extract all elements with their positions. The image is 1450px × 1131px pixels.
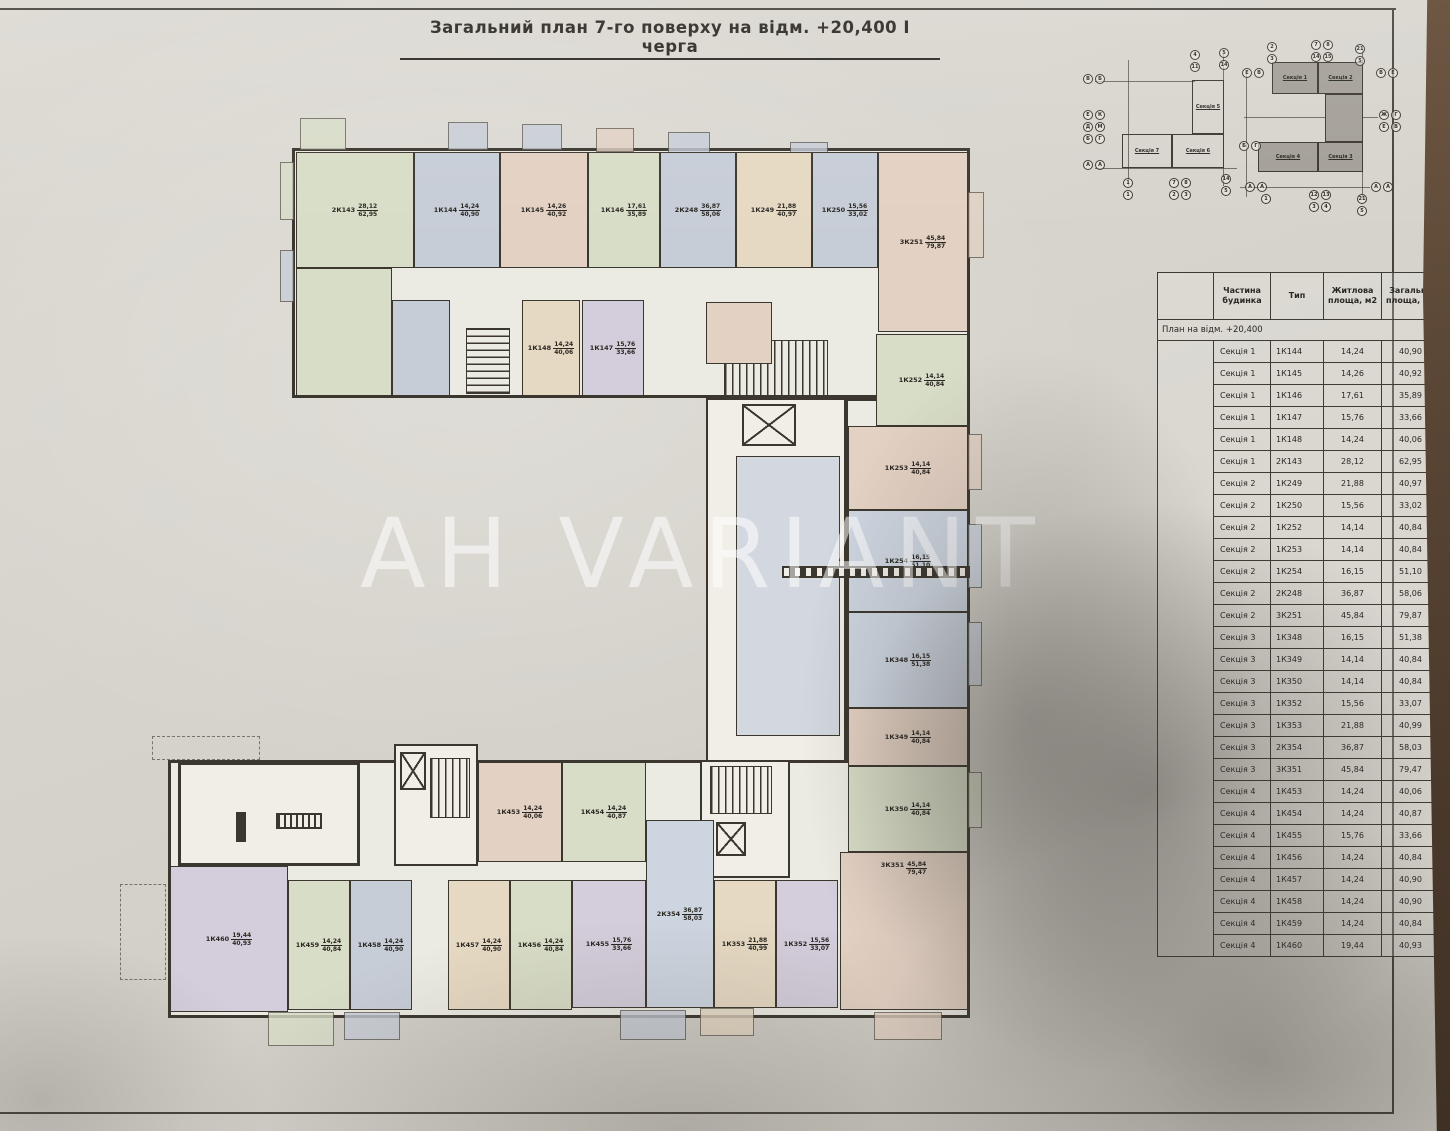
apartment-areas: 21,8840,99 <box>747 937 768 952</box>
axis-bubble: 12 <box>1309 190 1319 200</box>
type-cell: 1К458 <box>1271 891 1324 913</box>
axis-bubble: Г <box>1095 134 1105 144</box>
furniture-mark <box>236 812 246 842</box>
apartment-1К250: 1К25015,5633,02 <box>812 152 878 268</box>
apartment-1К249: 1К24921,8840,97 <box>736 152 812 268</box>
axis-bubble: 13 <box>1321 190 1331 200</box>
apartment-3К251: 3К25145,8479,87 <box>878 152 968 332</box>
total-area-cell: 40,84 <box>1382 847 1440 869</box>
living-area: 45,84 <box>925 235 946 243</box>
living-area: 28,12 <box>357 203 378 211</box>
axis-bubble: Е <box>1379 122 1389 132</box>
section-cell: Секція 1 <box>1214 407 1271 429</box>
apartment-1К460: 1К46019,4440,93 <box>170 866 288 1012</box>
apartment-1К146: 1К14617,6135,89 <box>588 152 660 268</box>
living-area: 21,88 <box>776 203 797 211</box>
apartment-code: 1К250 <box>822 206 845 214</box>
living-area: 21,88 <box>747 937 768 945</box>
apartment-code: 1К457 <box>456 941 479 949</box>
apartment-code: 2К248 <box>675 206 698 214</box>
balcony <box>700 1008 754 1036</box>
apartment-1К349: 1К34914,1440,84 <box>848 708 968 766</box>
living-area-cell: 14,14 <box>1324 517 1382 539</box>
apartment-areas: 14,2440,06 <box>522 805 543 820</box>
total-area: 40,90 <box>460 211 479 218</box>
apartment-areas: 21,8840,97 <box>776 203 797 218</box>
type-cell: 1К250 <box>1271 495 1324 517</box>
apartment-areas: 15,5633,02 <box>847 203 868 218</box>
stairs-section3 <box>710 766 772 814</box>
row-header-empty <box>1158 341 1214 957</box>
key-plan-wing-right <box>1325 94 1363 142</box>
living-area: 17,61 <box>626 203 647 211</box>
total-area-cell: 40,87 <box>1382 803 1440 825</box>
axis-bubble: К <box>1095 110 1105 120</box>
apartment-2К143: 2К14328,1262,95 <box>296 152 414 268</box>
type-cell: 3К251 <box>1271 605 1324 627</box>
living-area: 14,24 <box>553 341 574 349</box>
living-area: 14,24 <box>459 203 480 211</box>
section-cell: Секція 1 <box>1214 429 1271 451</box>
balcony <box>448 122 488 150</box>
total-area: 51,38 <box>911 661 930 668</box>
living-area-cell: 21,88 <box>1324 473 1382 495</box>
area-table-header-row: Частина будинка Тип Житлова площа, м2 За… <box>1158 273 1440 320</box>
total-area: 79,47 <box>907 869 926 876</box>
living-area-cell: 14,14 <box>1324 539 1382 561</box>
elevator-section3 <box>716 822 746 856</box>
axis-bubble: 15 <box>1323 52 1333 62</box>
living-area-cell: 14,24 <box>1324 803 1382 825</box>
apartment-code: 1К146 <box>601 206 624 214</box>
axis-bubble: М <box>1095 122 1105 132</box>
total-area-cell: 40,90 <box>1382 891 1440 913</box>
axis-bubble: 2 <box>1169 190 1179 200</box>
total-area: 40,87 <box>607 813 626 820</box>
axis-bubble: 8 <box>1323 40 1333 50</box>
living-area: 14,24 <box>321 938 342 946</box>
apartment-areas: 15,7633,66 <box>611 937 632 952</box>
apartment-code: 1К350 <box>885 805 908 813</box>
living-area: 36,87 <box>682 907 703 915</box>
total-area: 40,93 <box>232 940 251 947</box>
stairs-section4 <box>430 758 470 818</box>
header-living-area: Житлова площа, м2 <box>1324 273 1382 320</box>
total-area-cell: 40,06 <box>1382 781 1440 803</box>
living-area: 36,87 <box>700 203 721 211</box>
section-cell: Секція 2 <box>1214 561 1271 583</box>
apartment-code: 1К145 <box>521 206 544 214</box>
total-area: 79,87 <box>926 243 945 250</box>
balcony <box>268 1012 334 1046</box>
apartment-1К455: 1К45515,7633,66 <box>572 880 646 1008</box>
apartment-code: 3К251 <box>900 238 923 246</box>
section-cell: Секція 4 <box>1214 891 1271 913</box>
apartment-2К248: 2К24836,8758,06 <box>660 152 736 268</box>
living-area: 14,14 <box>924 373 945 381</box>
living-area: 14,26 <box>546 203 567 211</box>
section-cell: Секція 1 <box>1214 363 1271 385</box>
type-cell: 1К349 <box>1271 649 1324 671</box>
apartment-code: 1К458 <box>358 941 381 949</box>
living-area: 19,44 <box>231 932 252 940</box>
total-area: 40,84 <box>322 946 341 953</box>
apartment-code: 1К460 <box>206 935 229 943</box>
type-cell: 3К351 <box>1271 759 1324 781</box>
axis-bubble: Е <box>1388 68 1398 78</box>
section-cell: Секція 2 <box>1214 473 1271 495</box>
living-area-cell: 14,24 <box>1324 869 1382 891</box>
type-cell: 1К352 <box>1271 693 1324 715</box>
axis-bubble: А <box>1095 160 1105 170</box>
section-cell: Секція 2 <box>1214 517 1271 539</box>
room <box>296 268 392 396</box>
axis-bubble: А <box>1083 160 1093 170</box>
room <box>392 300 450 396</box>
axis-bubble: 7 <box>1311 40 1321 50</box>
living-area-cell: 14,24 <box>1324 891 1382 913</box>
living-area-cell: 14,14 <box>1324 671 1382 693</box>
section-cell: Секція 3 <box>1214 649 1271 671</box>
apartment-1К147: 1К14715,7633,66 <box>582 300 644 396</box>
apartment-areas: 36,8758,03 <box>682 907 703 922</box>
living-area-cell: 21,88 <box>1324 715 1382 737</box>
section-cell: Секція 2 <box>1214 495 1271 517</box>
total-area: 33,66 <box>616 349 635 356</box>
apartment-areas: 14,2440,90 <box>383 938 404 953</box>
key-plan-section-1: Секція 1 <box>1272 62 1318 94</box>
apartment-code: 3К351 <box>881 861 904 869</box>
axis-bubble: Г <box>1251 141 1261 151</box>
section-cell: Секція 3 <box>1214 715 1271 737</box>
axis-bubble: 2 <box>1267 42 1277 52</box>
type-cell: 1К146 <box>1271 385 1324 407</box>
apartment-code: 1К453 <box>497 808 520 816</box>
section-cell: Секція 2 <box>1214 583 1271 605</box>
axis-bubble: А <box>1383 182 1393 192</box>
total-area: 40,84 <box>911 810 930 817</box>
living-area: 15,56 <box>809 937 830 945</box>
total-area: 40,90 <box>384 946 403 953</box>
living-area: 14,24 <box>543 938 564 946</box>
section-cell: Секція 4 <box>1214 803 1271 825</box>
axis-bubble: Г <box>1391 110 1401 120</box>
key-plan-section-2: Секція 2 <box>1318 62 1363 94</box>
living-area: 16,15 <box>910 653 931 661</box>
axis-bubble: 21 <box>1357 194 1367 204</box>
total-area: 58,06 <box>701 211 720 218</box>
apartment-areas: 14,2440,06 <box>553 341 574 356</box>
axis-bubble: А <box>1371 182 1381 192</box>
axis-bubble: 1 <box>1261 194 1271 204</box>
apartment-code: 2К143 <box>332 206 355 214</box>
header-empty <box>1158 273 1214 320</box>
living-area-cell: 14,24 <box>1324 341 1382 363</box>
balcony <box>968 772 982 828</box>
apartment-areas: 36,8758,06 <box>700 203 721 218</box>
axis-bubble: 14 <box>1221 174 1231 184</box>
total-area: 58,03 <box>683 915 702 922</box>
group-row: План на відм. +20,400 <box>1158 320 1440 341</box>
total-area-cell: 33,66 <box>1382 825 1440 847</box>
section-cell: Секція 4 <box>1214 825 1271 847</box>
axis-bubble: 21 <box>1355 44 1365 54</box>
apartment-areas: 14,2440,90 <box>459 203 480 218</box>
living-area-cell: 36,87 <box>1324 737 1382 759</box>
type-cell: 1К249 <box>1271 473 1324 495</box>
total-area: 40,06 <box>554 349 573 356</box>
apartment-1К456: 1К45614,2440,84 <box>510 880 572 1010</box>
living-area-cell: 14,24 <box>1324 913 1382 935</box>
living-area: 15,76 <box>615 341 636 349</box>
apartment-code: 1К454 <box>581 808 604 816</box>
apartment-areas: 14,1440,84 <box>910 802 931 817</box>
axis-bubble: Д <box>1083 122 1093 132</box>
axis-bubble: В <box>1083 74 1093 84</box>
section-cell: Секція 4 <box>1214 781 1271 803</box>
total-area: 33,66 <box>612 945 631 952</box>
room <box>706 302 772 364</box>
watermark: AH VARIANT <box>360 498 1045 610</box>
axis-bubble: 3 <box>1309 202 1319 212</box>
total-area: 40,84 <box>544 946 563 953</box>
apartment-code: 1К352 <box>784 940 807 948</box>
apartment-1К459: 1К45914,2440,84 <box>288 880 350 1010</box>
total-area: 40,06 <box>523 813 542 820</box>
key-plan-section-3: Секція 3 <box>1318 142 1363 172</box>
area-table-body: План на відм. +20,400 Секція 11К14414,24… <box>1158 320 1440 957</box>
photo-of-floor-plan-sheet: Загальний план 7-го поверху на відм. +20… <box>0 0 1450 1131</box>
total-area: 33,07 <box>810 945 829 952</box>
header-part: Частина будинка <box>1214 273 1271 320</box>
total-area-cell: 40,84 <box>1382 913 1440 935</box>
living-area: 14,24 <box>522 805 543 813</box>
total-area: 33,02 <box>848 211 867 218</box>
terrace-outline <box>120 884 166 980</box>
type-cell: 2К143 <box>1271 451 1324 473</box>
apartment-areas: 14,1440,84 <box>910 461 931 476</box>
section-cell: Секція 3 <box>1214 671 1271 693</box>
type-cell: 2К248 <box>1271 583 1324 605</box>
type-cell: 1К459 <box>1271 913 1324 935</box>
area-table: Частина будинка Тип Житлова площа, м2 За… <box>1157 272 1440 957</box>
apartment-1К148: 1К14814,2440,06 <box>522 300 580 396</box>
type-cell: 1К252 <box>1271 517 1324 539</box>
apartment-1К458: 1К45814,2440,90 <box>350 880 412 1010</box>
living-area-cell: 17,61 <box>1324 385 1382 407</box>
living-area: 14,24 <box>606 805 627 813</box>
apartment-code: 1К459 <box>296 941 319 949</box>
axis-bubble: 5 <box>1219 48 1229 58</box>
axis-bubble: 5 <box>1221 186 1231 196</box>
elevator-central <box>742 404 796 446</box>
type-cell: 1К144 <box>1271 341 1324 363</box>
total-area: 40,99 <box>748 945 767 952</box>
living-area-cell: 15,56 <box>1324 693 1382 715</box>
type-cell: 1К350 <box>1271 671 1324 693</box>
axis-bubble: 3 <box>1267 54 1277 64</box>
total-area: 40,84 <box>911 469 930 476</box>
key-plan-axis-line <box>1095 168 1237 169</box>
section-cell: Секція 4 <box>1214 847 1271 869</box>
key-plan-section-7: Секція 7 <box>1122 134 1172 168</box>
living-area: 14,14 <box>910 461 931 469</box>
axis-bubble: Б <box>1095 74 1105 84</box>
apartment-areas: 16,1551,38 <box>910 653 931 668</box>
section-cell: Секція 3 <box>1214 759 1271 781</box>
balcony <box>620 1010 686 1040</box>
living-area: 14,24 <box>383 938 404 946</box>
living-area-cell: 45,84 <box>1324 605 1382 627</box>
living-area-cell: 14,24 <box>1324 781 1382 803</box>
type-cell: 1К353 <box>1271 715 1324 737</box>
axis-bubble: В <box>1254 68 1264 78</box>
total-area: 40,97 <box>777 211 796 218</box>
apartment-areas: 19,4440,93 <box>231 932 252 947</box>
living-area-cell: 15,76 <box>1324 825 1382 847</box>
axis-bubble: В <box>1391 122 1401 132</box>
total-area: 35,89 <box>627 211 646 218</box>
type-cell: 1К456 <box>1271 847 1324 869</box>
total-area: 40,92 <box>547 211 566 218</box>
axis-bubble: 14 <box>1311 52 1321 62</box>
living-area-cell: 36,87 <box>1324 583 1382 605</box>
balcony <box>668 132 710 154</box>
living-area: 45,84 <box>906 861 927 869</box>
apartment-areas: 14,2440,84 <box>543 938 564 953</box>
apartment-1К454: 1К45414,2440,87 <box>562 762 646 862</box>
living-area-cell: 14,24 <box>1324 429 1382 451</box>
section-cell: Секція 4 <box>1214 913 1271 935</box>
apartment-1К353: 1К35321,8840,99 <box>714 880 776 1008</box>
axis-bubble: Б <box>1239 141 1249 151</box>
apartment-code: 1К148 <box>528 344 551 352</box>
axis-bubble: 11 <box>1190 62 1200 72</box>
axis-bubble: Е <box>1242 68 1252 78</box>
apartment-3К351: 3К35145,8479,47 <box>840 852 968 1010</box>
apartment-areas: 14,2440,84 <box>321 938 342 953</box>
total-area-cell: 40,90 <box>1382 869 1440 891</box>
balcony <box>596 128 634 152</box>
axis-bubble: 5 <box>1355 56 1365 66</box>
apartment-code: 2К354 <box>657 910 680 918</box>
apartment-areas: 28,1262,95 <box>357 203 378 218</box>
apartment-areas: 14,2440,87 <box>606 805 627 820</box>
balcony <box>280 250 294 302</box>
axis-bubble: 14 <box>1219 60 1229 70</box>
balcony <box>300 118 346 150</box>
living-area: 15,56 <box>847 203 868 211</box>
section-cell: Секція 3 <box>1214 737 1271 759</box>
axis-bubble: 3 <box>1181 190 1191 200</box>
section-cell: Секція 4 <box>1214 935 1271 957</box>
apartment-code: 1К249 <box>751 206 774 214</box>
type-cell: 1К454 <box>1271 803 1324 825</box>
living-area-cell: 45,84 <box>1324 759 1382 781</box>
balcony <box>968 434 982 490</box>
key-plan-section-4: Секція 4 <box>1258 142 1318 172</box>
elevator-section4 <box>400 752 426 790</box>
apartment-code: 1К349 <box>885 733 908 741</box>
header-type: Тип <box>1271 273 1324 320</box>
section-cell: Секція 3 <box>1214 693 1271 715</box>
room <box>178 762 360 866</box>
apartment-code: 1К144 <box>434 206 457 214</box>
type-cell: 1К460 <box>1271 935 1324 957</box>
axis-bubble: В <box>1376 68 1386 78</box>
living-area-cell: 19,44 <box>1324 935 1382 957</box>
axis-bubble: 4 <box>1321 202 1331 212</box>
apartment-code: 1К252 <box>899 376 922 384</box>
apartment-code: 1К348 <box>885 656 908 664</box>
living-area-cell: 14,26 <box>1324 363 1382 385</box>
type-cell: 1К148 <box>1271 429 1324 451</box>
living-area-cell: 14,14 <box>1324 649 1382 671</box>
apartment-areas: 14,1440,84 <box>924 373 945 388</box>
balcony <box>874 1012 942 1040</box>
axis-bubble: 5 <box>1357 206 1367 216</box>
axis-bubble: Е <box>1083 110 1093 120</box>
type-cell: 1К253 <box>1271 539 1324 561</box>
apartment-1К348: 1К34816,1551,38 <box>848 612 968 708</box>
key-plan-axis-line <box>1246 73 1247 197</box>
axis-bubble: 8 <box>1181 178 1191 188</box>
living-area-cell: 14,24 <box>1324 847 1382 869</box>
axis-bubble: Б <box>1083 134 1093 144</box>
axis-bubble: 1 <box>1123 178 1133 188</box>
axis-bubble: А <box>1245 182 1255 192</box>
apartment-areas: 17,6135,89 <box>626 203 647 218</box>
apartment-1К350: 1К35014,1440,84 <box>848 766 968 852</box>
section-cell: Секція 3 <box>1214 627 1271 649</box>
balcony <box>280 162 294 220</box>
apartment-1К457: 1К45714,2440,90 <box>448 880 510 1010</box>
apartment-1К352: 1К35215,5633,07 <box>776 880 838 1008</box>
type-cell: 1К147 <box>1271 407 1324 429</box>
apartment-areas: 15,7633,66 <box>615 341 636 356</box>
key-plan-axis-line <box>1095 81 1195 82</box>
type-cell: 2К354 <box>1271 737 1324 759</box>
group-row-label: План на відм. +20,400 <box>1158 320 1440 341</box>
balcony <box>968 192 984 258</box>
terrace-outline <box>152 736 260 760</box>
living-area: 14,24 <box>481 938 502 946</box>
apartment-1К144: 1К14414,2440,90 <box>414 152 500 268</box>
total-area: 40,84 <box>925 381 944 388</box>
furniture-mark <box>276 813 322 829</box>
apartment-code: 1К455 <box>586 940 609 948</box>
total-area: 40,90 <box>482 946 501 953</box>
living-area: 14,14 <box>910 802 931 810</box>
section-cell: Секція 2 <box>1214 539 1271 561</box>
total-area-cell: 40,93 <box>1382 935 1440 957</box>
apartment-areas: 45,8479,87 <box>925 235 946 250</box>
apartment-code: 1К353 <box>722 940 745 948</box>
apartment-areas: 45,8479,47 <box>906 861 927 876</box>
apartment-1К453: 1К45314,2440,06 <box>478 762 562 862</box>
apartment-areas: 15,5633,07 <box>809 937 830 952</box>
balcony <box>344 1012 400 1040</box>
apartment-2К354: 2К35436,8758,03 <box>646 820 714 1008</box>
apartment-1К252: 1К25214,1440,84 <box>876 334 968 426</box>
section-cell: Секція 1 <box>1214 451 1271 473</box>
axis-bubble: 1 <box>1123 190 1133 200</box>
type-cell: 1К457 <box>1271 869 1324 891</box>
balcony <box>968 622 982 686</box>
stairs-section1 <box>466 328 510 394</box>
apartment-areas: 14,1440,84 <box>910 730 931 745</box>
section-cell: Секція 1 <box>1214 385 1271 407</box>
